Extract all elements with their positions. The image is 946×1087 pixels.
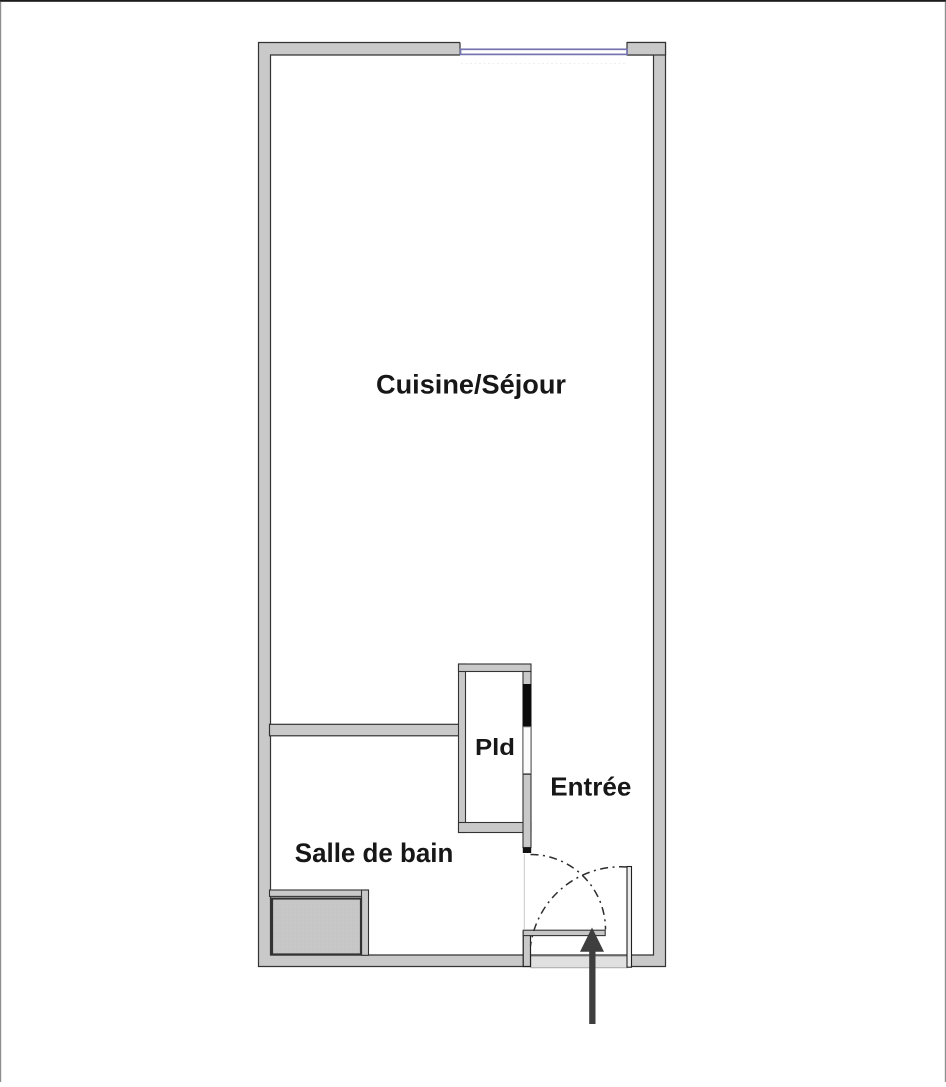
- svg-text:Cuisine/Séjour: Cuisine/Séjour: [376, 369, 566, 399]
- svg-text:Entrée: Entrée: [550, 772, 631, 802]
- svg-text:Salle de bain: Salle de bain: [295, 838, 454, 868]
- svg-text:Pld: Pld: [475, 734, 515, 760]
